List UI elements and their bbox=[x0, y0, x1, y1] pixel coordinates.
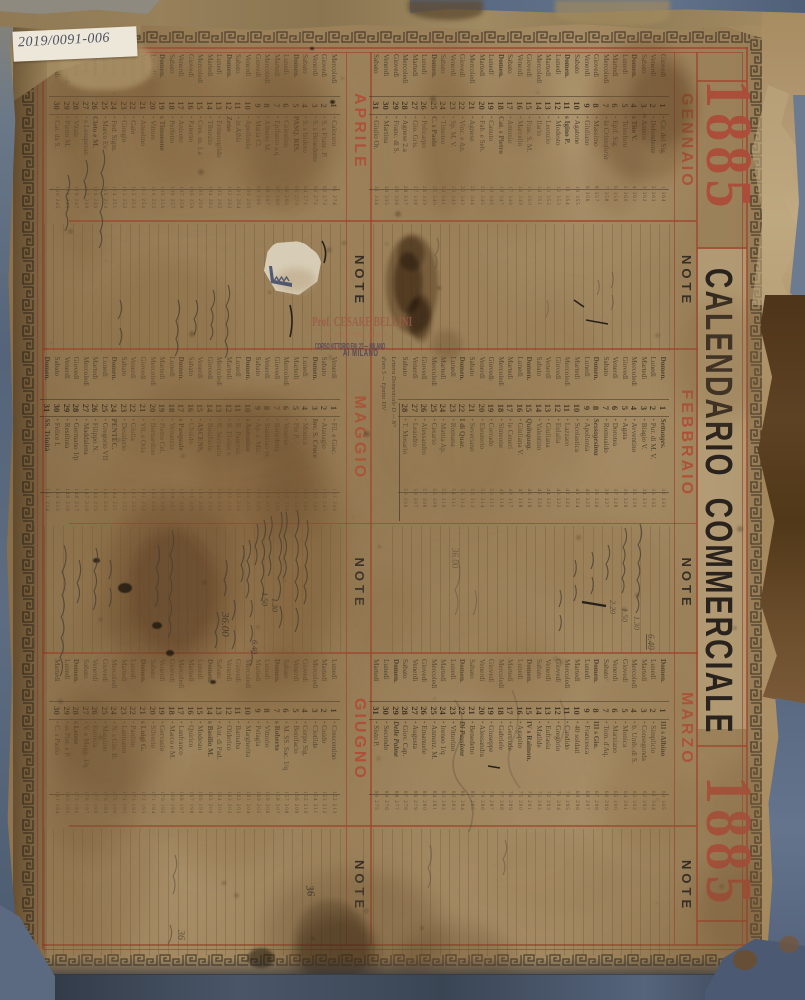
svg-text:36: 36 bbox=[303, 883, 317, 897]
svg-text:1.50: 1.50 bbox=[260, 592, 269, 606]
svg-text:36: 36 bbox=[175, 929, 186, 940]
svg-text:6.40: 6.40 bbox=[250, 640, 259, 654]
svg-text:2.20: 2.20 bbox=[608, 600, 617, 614]
svg-text:1.30: 1.30 bbox=[270, 598, 279, 612]
svg-text:36.00: 36.00 bbox=[219, 611, 231, 637]
svg-text:1.30: 1.30 bbox=[632, 616, 641, 630]
svg-text:1.50: 1.50 bbox=[620, 608, 629, 622]
svg-text:36.00: 36.00 bbox=[450, 547, 460, 569]
svg-text:6.40: 6.40 bbox=[646, 634, 656, 650]
